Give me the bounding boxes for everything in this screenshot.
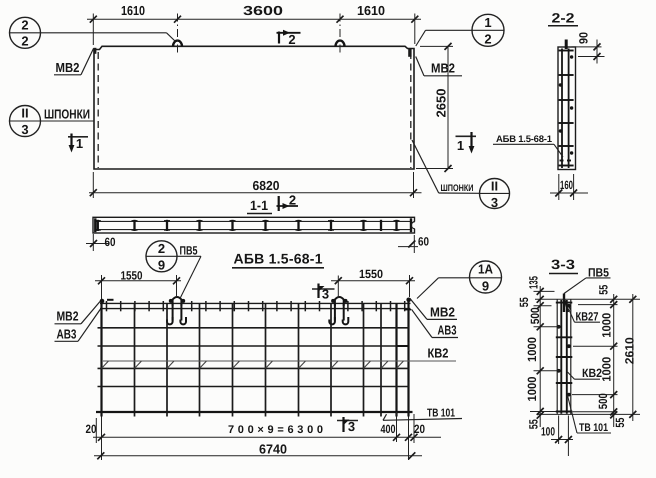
svg-text:АВ3: АВ3: [57, 327, 77, 342]
svg-text:2: 2: [288, 32, 295, 47]
svg-text:500: 500: [528, 307, 542, 324]
svg-text:3: 3: [348, 419, 355, 434]
svg-text:3: 3: [491, 195, 498, 210]
svg-text:2: 2: [21, 18, 28, 33]
svg-text:КВ27: КВ27: [576, 310, 599, 324]
svg-text:1610: 1610: [121, 3, 145, 18]
svg-text:55: 55: [526, 419, 540, 429]
svg-text:1000: 1000: [525, 337, 539, 362]
svg-text:ТВ 101: ТВ 101: [579, 422, 608, 434]
svg-text:2610: 2610: [623, 337, 637, 364]
svg-text:II: II: [21, 106, 28, 121]
svg-text:55: 55: [613, 417, 627, 427]
svg-text:3: 3: [322, 287, 329, 302]
svg-text:1-1: 1-1: [250, 198, 268, 213]
svg-text:90: 90: [577, 32, 591, 44]
svg-text:КВ2: КВ2: [428, 346, 449, 361]
svg-text:1: 1: [457, 138, 464, 153]
svg-text:АБВ 1.5-68-1: АБВ 1.5-68-1: [234, 251, 323, 267]
svg-text:3: 3: [21, 122, 28, 137]
svg-text:1000: 1000: [600, 357, 614, 382]
svg-text:20: 20: [414, 422, 425, 436]
svg-text:60: 60: [418, 235, 429, 249]
svg-text:135: 135: [527, 276, 541, 289]
svg-text:1000: 1000: [525, 376, 539, 401]
svg-text:ШПОНКИ: ШПОНКИ: [441, 183, 474, 194]
svg-text:20: 20: [86, 422, 97, 436]
svg-text:МВ2: МВ2: [57, 309, 79, 324]
svg-text:1000: 1000: [600, 313, 614, 338]
svg-text:2: 2: [484, 32, 491, 47]
svg-text:МВ2: МВ2: [430, 305, 455, 320]
svg-text:ПВ5: ПВ5: [180, 244, 198, 258]
svg-text:2: 2: [21, 34, 28, 49]
svg-text:2: 2: [158, 241, 165, 256]
svg-text:АВ3: АВ3: [438, 323, 457, 338]
svg-text:1: 1: [484, 15, 491, 30]
svg-text:3-3: 3-3: [551, 257, 576, 272]
svg-text:1А: 1А: [478, 262, 494, 277]
svg-text:60: 60: [105, 235, 116, 249]
svg-text:400: 400: [381, 422, 396, 436]
svg-text:1610: 1610: [357, 3, 385, 18]
svg-text:160: 160: [560, 178, 573, 192]
svg-text:2-2: 2-2: [552, 11, 575, 26]
svg-text:1: 1: [76, 136, 83, 151]
svg-text:3600: 3600: [243, 3, 283, 18]
svg-text:1550: 1550: [359, 267, 383, 281]
svg-text:6740: 6740: [259, 442, 287, 457]
svg-text:II: II: [491, 178, 498, 193]
svg-text:500: 500: [596, 393, 610, 409]
svg-text:МВ2: МВ2: [56, 60, 80, 75]
svg-text:2650: 2650: [434, 89, 449, 118]
svg-text:АБВ 1.5-68-1: АБВ 1.5-68-1: [496, 134, 553, 145]
svg-text:МВ2: МВ2: [431, 61, 455, 76]
svg-text:ТВ 101: ТВ 101: [427, 408, 455, 420]
svg-text:55: 55: [596, 284, 610, 294]
svg-text:55: 55: [517, 297, 531, 307]
svg-text:2: 2: [289, 193, 296, 208]
svg-text:100: 100: [541, 425, 555, 439]
svg-text:9: 9: [482, 279, 489, 294]
svg-text:ШПОНКИ: ШПОНКИ: [44, 107, 90, 122]
svg-text:6820: 6820: [253, 178, 280, 193]
svg-text:9: 9: [158, 258, 165, 273]
